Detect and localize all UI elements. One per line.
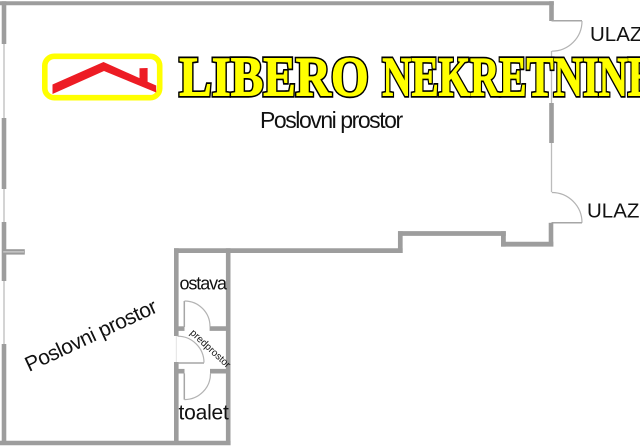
svg-text:Poslovni prostor: Poslovni prostor	[260, 107, 403, 133]
svg-text:ULAZ: ULAZ	[587, 200, 639, 223]
svg-text:ULAZ: ULAZ	[590, 23, 640, 46]
svg-text:ostava: ostava	[180, 274, 229, 294]
svg-text:Poslovni prostor: Poslovni prostor	[21, 295, 160, 376]
svg-text:NEKRETNINE: NEKRETNINE	[382, 46, 640, 108]
svg-text:LIBERO: LIBERO	[179, 46, 368, 108]
svg-text:toalet: toalet	[179, 402, 230, 425]
